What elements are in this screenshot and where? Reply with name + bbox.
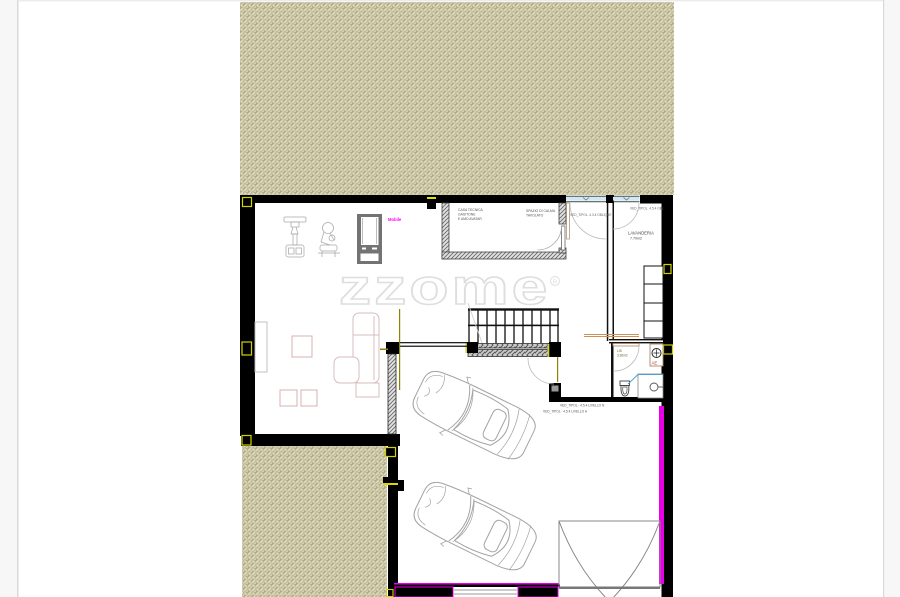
- svg-text:SPAZIO DI CALMA: SPAZIO DI CALMA: [526, 209, 556, 213]
- svg-text:LIS: LIS: [617, 349, 622, 353]
- svg-text:3.30m2: 3.30m2: [617, 354, 628, 358]
- svg-text:VED_TIPOL - 4.5.4 LIVELLO N: VED_TIPOL - 4.5.4 LIVELLO N: [560, 404, 605, 408]
- svg-text:LAVANDERIA: LAVANDERIA: [628, 231, 654, 236]
- svg-text:AE: AE: [652, 361, 658, 366]
- svg-text:VED_TIPOL. 4.3.4 OBLIQUE: VED_TIPOL. 4.3.4 OBLIQUE: [570, 213, 611, 217]
- svg-text:VED_TIPOL. 4.5.4 OBL: VED_TIPOL. 4.5.4 OBL: [630, 207, 664, 211]
- svg-text:Mobile: Mobile: [388, 217, 402, 222]
- svg-text:R: R: [553, 279, 558, 286]
- svg-text:zzome: zzome: [339, 260, 551, 316]
- svg-text:TAVOLATO: TAVOLATO: [526, 214, 544, 218]
- svg-text:VED_TIPOL - 4.5.4 LIVELLO A: VED_TIPOL - 4.5.4 LIVELLO A: [543, 410, 588, 414]
- svg-text:7.70m2: 7.70m2: [630, 237, 642, 241]
- svg-text:GASITONE: GASITONE: [458, 213, 476, 217]
- svg-text:CASA TECNICA: CASA TECNICA: [458, 208, 484, 212]
- svg-text:E AMD AVATAR: E AMD AVATAR: [458, 217, 482, 221]
